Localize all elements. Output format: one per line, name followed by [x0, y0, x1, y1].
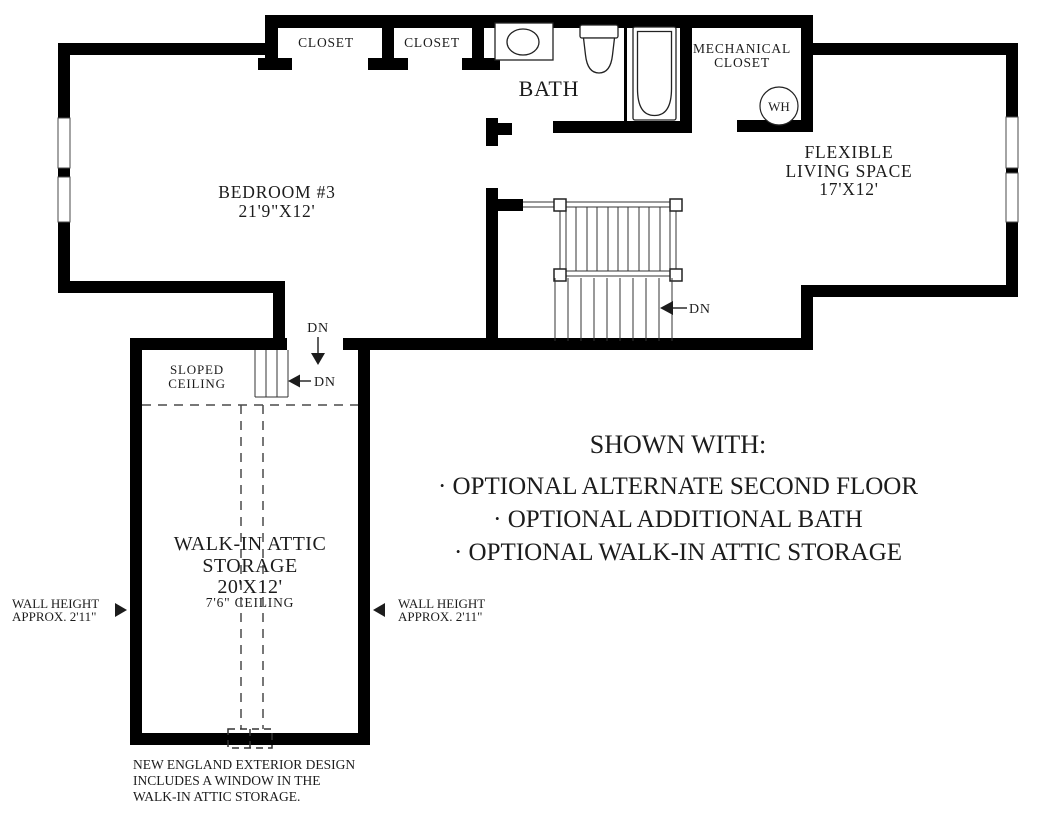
shown-with-item-1: · OPTIONAL ALTERNATE SECOND FLOOR — [438, 473, 918, 500]
floor-plan-svg: DN DN DN CLOSET CLOSET BATH MECHANICAL C… — [0, 0, 1048, 815]
bedroom-3-dimensions: 21'9"X12' — [238, 201, 315, 221]
bath-label: BATH — [519, 76, 580, 101]
main-stairs-dn-label: DN — [689, 302, 711, 317]
window-flex-right-2 — [1006, 173, 1018, 222]
shown-with-item-2: · OPTIONAL ADDITIONAL BATH — [493, 506, 863, 533]
arrow-right-icon — [115, 603, 127, 617]
flexible-living-dimensions: 17'X12' — [819, 179, 879, 199]
main-stairs-dn-arrow-icon — [660, 301, 687, 315]
exterior-note-line-3: WALK-IN ATTIC STORAGE. — [133, 789, 300, 804]
attic-steps-dn-label: DN — [314, 375, 336, 390]
attic-entry-steps — [255, 350, 288, 397]
shown-with-item-3: · OPTIONAL WALK-IN ATTIC STORAGE — [454, 539, 902, 566]
attic-storage-label-1: WALK-IN ATTIC — [174, 533, 327, 555]
flexible-living-label-1: FLEXIBLE — [804, 142, 893, 162]
mechanical-closet-label-2: CLOSET — [714, 55, 770, 70]
attic-storage-ceiling-label: 7'6" CEILING — [206, 595, 294, 610]
wall-height-left-annotation: WALL HEIGHT APPROX. 2'11" — [12, 596, 127, 624]
closet-left-label: CLOSET — [298, 35, 354, 50]
toilet-tank-icon — [580, 25, 618, 38]
floor-plan-page: DN DN DN CLOSET CLOSET BATH MECHANICAL C… — [0, 0, 1048, 815]
sloped-ceiling-label-2: CEILING — [168, 376, 226, 391]
exterior-design-note: NEW ENGLAND EXTERIOR DESIGN INCLUDES A W… — [133, 757, 355, 804]
shown-with-title: SHOWN WITH: — [590, 430, 766, 459]
wall-height-right-label-2: APPROX. 2'11" — [398, 609, 482, 624]
wall-height-left-label-2: APPROX. 2'11" — [12, 609, 96, 624]
flexible-living-label-2: LIVING SPACE — [785, 161, 912, 181]
bedroom-3-label: BEDROOM #3 — [218, 182, 335, 202]
tub-partition-wall — [624, 28, 627, 121]
sloped-ceiling-label-1: SLOPED — [170, 362, 224, 377]
mechanical-closet-label-1: MECHANICAL — [693, 41, 791, 56]
arrow-left-icon — [373, 603, 385, 617]
shown-with-block: SHOWN WITH: · OPTIONAL ALTERNATE SECOND … — [438, 430, 918, 566]
sink-basin-icon — [507, 29, 539, 55]
exterior-note-line-1: NEW ENGLAND EXTERIOR DESIGN — [133, 757, 355, 772]
window-bedroom-left-2 — [58, 177, 70, 222]
window-bedroom-left-1 — [58, 118, 70, 168]
toilet-bowl-icon — [584, 38, 615, 73]
water-heater-label: WH — [768, 99, 790, 114]
attic-entry-dn-label: DN — [307, 321, 329, 336]
bathtub-basin-icon — [638, 32, 672, 116]
attic-steps-dn-arrow-icon — [288, 375, 311, 388]
bath-fixtures — [495, 23, 798, 125]
exterior-note-line-2: INCLUDES A WINDOW IN THE — [133, 773, 321, 788]
attic-entry-dn-arrow-icon — [311, 337, 325, 365]
closet-right-label: CLOSET — [404, 35, 460, 50]
attic-storage-label-2: STORAGE — [202, 555, 297, 577]
main-stairs — [523, 199, 682, 341]
window-flex-right-1 — [1006, 117, 1018, 168]
wall-height-right-annotation: WALL HEIGHT APPROX. 2'11" — [373, 596, 485, 624]
